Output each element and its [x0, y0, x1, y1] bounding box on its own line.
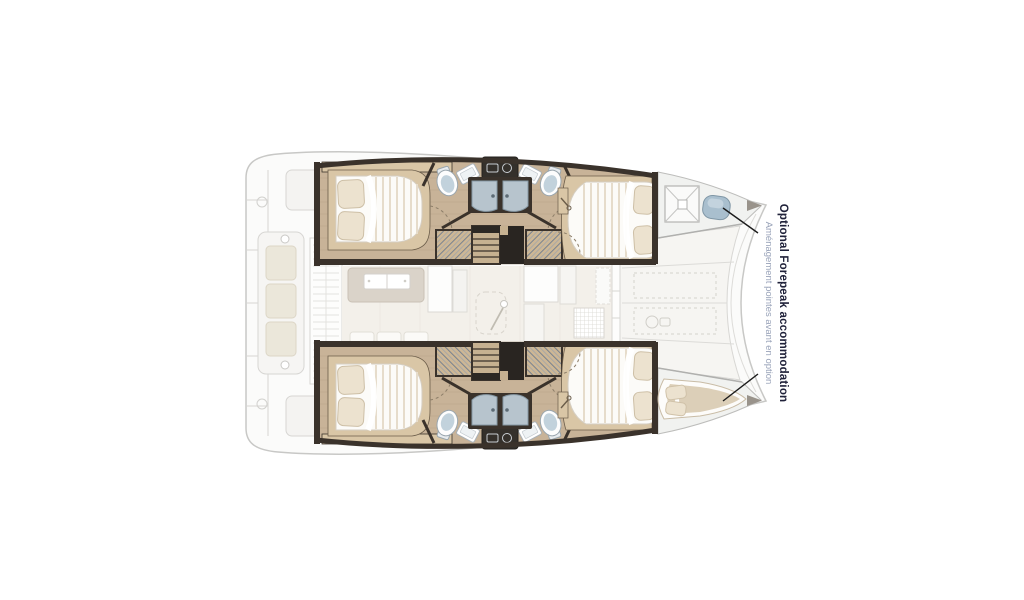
wardrobe: [526, 230, 562, 262]
catamaran-deck-plan: [0, 0, 1024, 600]
pillow: [665, 385, 687, 401]
stove-grid-icon: [574, 308, 604, 338]
forepeak-pad: [701, 194, 731, 221]
floorplan-canvas: Optional Forepeak accommodation Aménagem…: [0, 0, 1024, 600]
salon-cabinet: [428, 266, 452, 312]
companionway-stairs: [472, 226, 524, 264]
forepeak-annotation-title: Optional Forepeak accommodation: [775, 204, 789, 403]
pillow: [633, 225, 655, 254]
pillow: [633, 185, 655, 214]
hull-inner-wall: [314, 259, 472, 265]
wardrobe: [436, 230, 472, 262]
hull-inner-wall: [524, 259, 656, 265]
salon-sofa: [348, 268, 424, 302]
aft-cabin-bed: [328, 170, 430, 250]
forepeak-annotation-subtitle: Aménagement pointes avant en option: [763, 204, 774, 403]
forepeak-bulkhead: [652, 172, 658, 264]
shower: [468, 177, 532, 213]
salon-faded: [342, 264, 625, 346]
forward-cabin-bed: [558, 176, 655, 262]
forepeak-annotation: Optional Forepeak accommodation Aménagem…: [763, 204, 789, 403]
pillow: [665, 401, 687, 417]
pillow: [337, 211, 364, 240]
salon-cabinet: [453, 270, 467, 312]
cockpit-bench: [258, 232, 304, 374]
pillow: [337, 179, 364, 208]
